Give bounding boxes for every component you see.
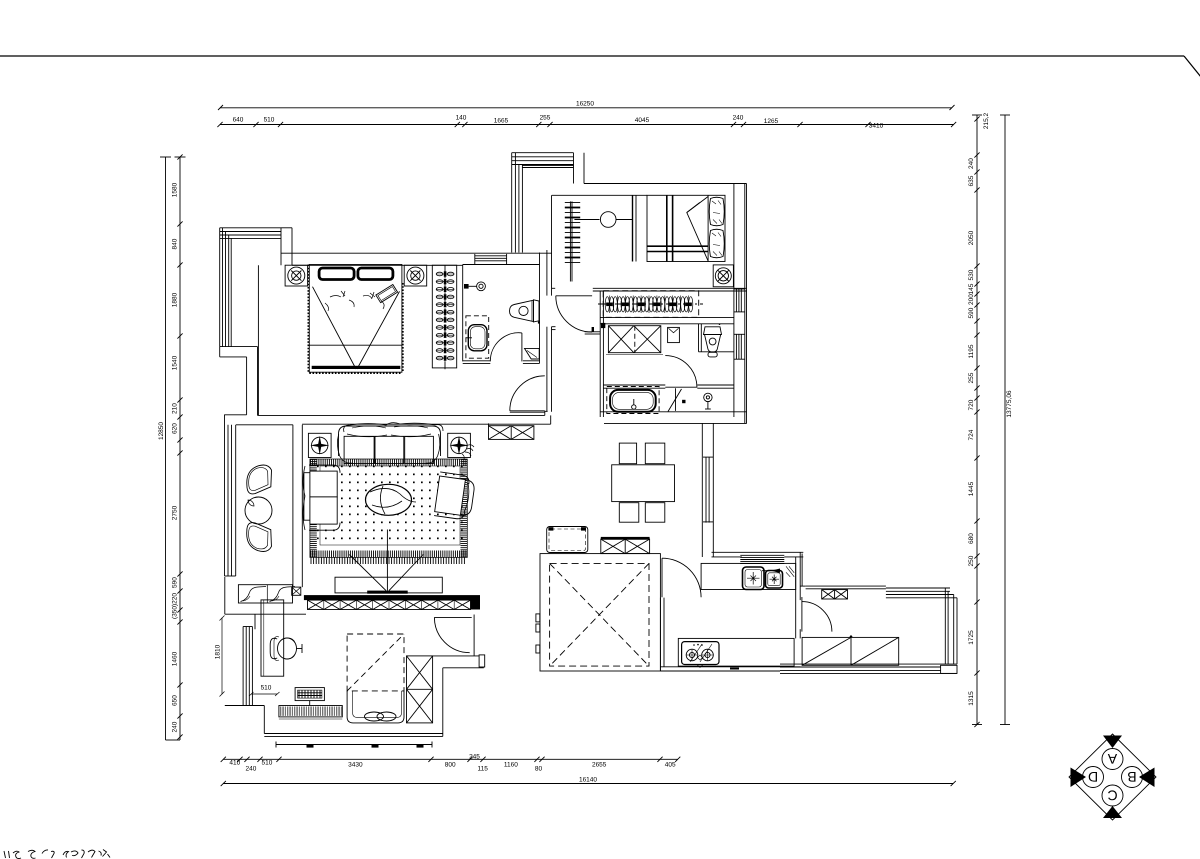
svg-text:590: 590 [172, 577, 179, 588]
svg-text:240: 240 [245, 766, 256, 773]
svg-text:1315: 1315 [968, 691, 975, 706]
svg-text:1195: 1195 [968, 344, 975, 358]
svg-text:240: 240 [172, 721, 179, 732]
svg-text:1460: 1460 [172, 651, 179, 666]
svg-text:1880: 1880 [172, 292, 179, 307]
svg-text:4045: 4045 [635, 117, 650, 124]
svg-text:640: 640 [233, 117, 244, 124]
svg-text:200: 200 [968, 294, 975, 305]
svg-text:840: 840 [172, 238, 179, 249]
svg-text:590: 590 [968, 307, 975, 318]
svg-text:12850: 12850 [158, 422, 165, 440]
svg-text:16140: 16140 [579, 777, 597, 784]
svg-text:410: 410 [229, 760, 240, 767]
svg-text:1265: 1265 [764, 118, 779, 125]
svg-text:240: 240 [733, 115, 744, 122]
svg-text:250: 250 [968, 555, 975, 566]
svg-text:16250: 16250 [576, 101, 594, 108]
svg-text:115: 115 [478, 766, 489, 773]
svg-text:800: 800 [445, 762, 456, 769]
svg-text:650: 650 [172, 695, 179, 706]
svg-text:1725: 1725 [968, 630, 975, 645]
svg-text:(350)220: (350)220 [172, 593, 179, 619]
svg-text:255: 255 [540, 115, 551, 122]
svg-text:13775,06: 13775,06 [1006, 390, 1013, 417]
svg-text:B: B [1127, 769, 1136, 785]
svg-text:3410: 3410 [869, 123, 884, 130]
svg-text:1160: 1160 [504, 762, 518, 769]
svg-text:240: 240 [968, 158, 975, 169]
svg-text:2655: 2655 [592, 762, 607, 769]
svg-text:A: A [1107, 751, 1117, 767]
svg-text:1540: 1540 [172, 355, 179, 370]
svg-text:620: 620 [172, 423, 179, 434]
svg-text:1665: 1665 [494, 118, 509, 125]
svg-text:255: 255 [968, 372, 975, 383]
svg-text:724: 724 [968, 429, 975, 440]
svg-text:145: 145 [968, 283, 975, 294]
svg-text:215,2: 215,2 [983, 112, 990, 129]
svg-text:2050: 2050 [968, 230, 975, 245]
svg-text:1580: 1580 [172, 182, 179, 197]
svg-text:3430: 3430 [348, 762, 363, 769]
svg-text:510: 510 [261, 760, 272, 767]
svg-text:C: C [1107, 788, 1117, 804]
svg-text:D: D [1088, 769, 1098, 785]
svg-text:405: 405 [665, 762, 676, 769]
svg-text:635: 635 [968, 175, 975, 186]
svg-text:720: 720 [968, 399, 975, 410]
svg-text:530: 530 [968, 269, 975, 280]
svg-text:680: 680 [968, 533, 975, 544]
svg-text:1810: 1810 [215, 644, 222, 659]
svg-text:1445: 1445 [968, 481, 975, 496]
svg-text:210: 210 [172, 403, 179, 414]
svg-text:510: 510 [261, 685, 272, 692]
svg-text:245: 245 [469, 754, 480, 761]
svg-text:2750: 2750 [172, 505, 179, 520]
svg-text:510: 510 [264, 117, 275, 124]
svg-text:140: 140 [456, 115, 467, 122]
svg-text:80: 80 [535, 766, 543, 773]
